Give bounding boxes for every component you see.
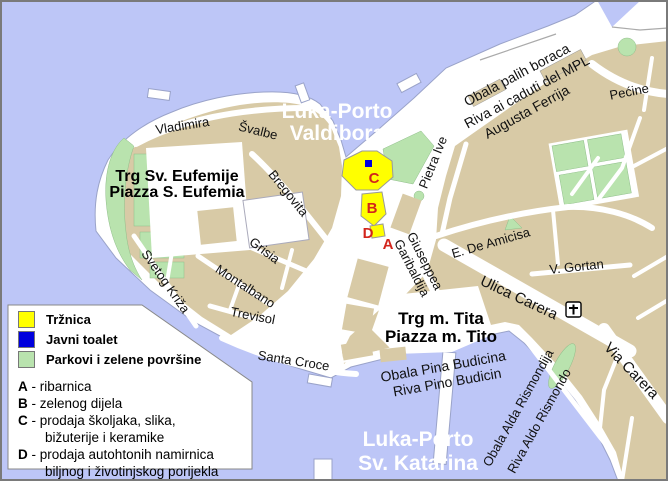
legend-marker-c: C - prodaja školjaka, slika, bižuterije … — [18, 412, 252, 446]
place-label-tito-2: Piazza m. Tito — [385, 327, 497, 346]
rovinj-map: C B D A Vladimira Švalbe Bregovita Grisi… — [0, 0, 668, 481]
legend-marker-list: A - ribarnica B - zelenog dijela C - pro… — [18, 378, 252, 480]
map-marker-b: B — [367, 200, 378, 217]
church-icon — [566, 302, 581, 317]
water-label-valdibora-2: Valdibora — [290, 122, 385, 145]
courtyard-gardens — [549, 130, 640, 211]
legend-item-park: Parkovi i zelene površine — [18, 349, 252, 369]
place-label-eufemija-1: Trg Sv. Eufemije — [115, 168, 238, 185]
water-label-valdibora-1: Luka-Porto — [282, 100, 393, 123]
legend-item-label: Parkovi i zelene površine — [46, 352, 201, 367]
water-label-katarina-1: Luka-Porto — [363, 428, 474, 451]
market-zone-c — [342, 151, 393, 190]
map-marker-d: D — [363, 225, 374, 242]
legend-item-toalet: Javni toalet — [18, 329, 252, 349]
place-label-eufemija-2: Piazza S. Eufemia — [109, 184, 244, 201]
toilet-swatch — [18, 331, 35, 348]
park-swatch — [18, 351, 35, 368]
map-marker-c: C — [369, 170, 380, 187]
market-swatch — [18, 311, 35, 328]
legend-item-label: Tržnica — [46, 312, 91, 327]
legend-item-trznica: Tržnica — [18, 309, 252, 329]
legend-marker-a: A - ribarnica — [18, 378, 252, 395]
legend-marker-d: D - prodaja autohtonih namirnica biljnog… — [18, 446, 252, 480]
legend-marker-b: B - zelenog dijela — [18, 395, 252, 412]
public-toilet-square — [365, 160, 372, 167]
legend-item-label: Javni toalet — [46, 332, 118, 347]
water-label-katarina-2: Sv. Katarina — [358, 452, 478, 475]
legend: Tržnica Javni toalet Parkovi i zelene po… — [8, 305, 252, 469]
place-label-tito-1: Trg m. Tita — [398, 309, 484, 328]
